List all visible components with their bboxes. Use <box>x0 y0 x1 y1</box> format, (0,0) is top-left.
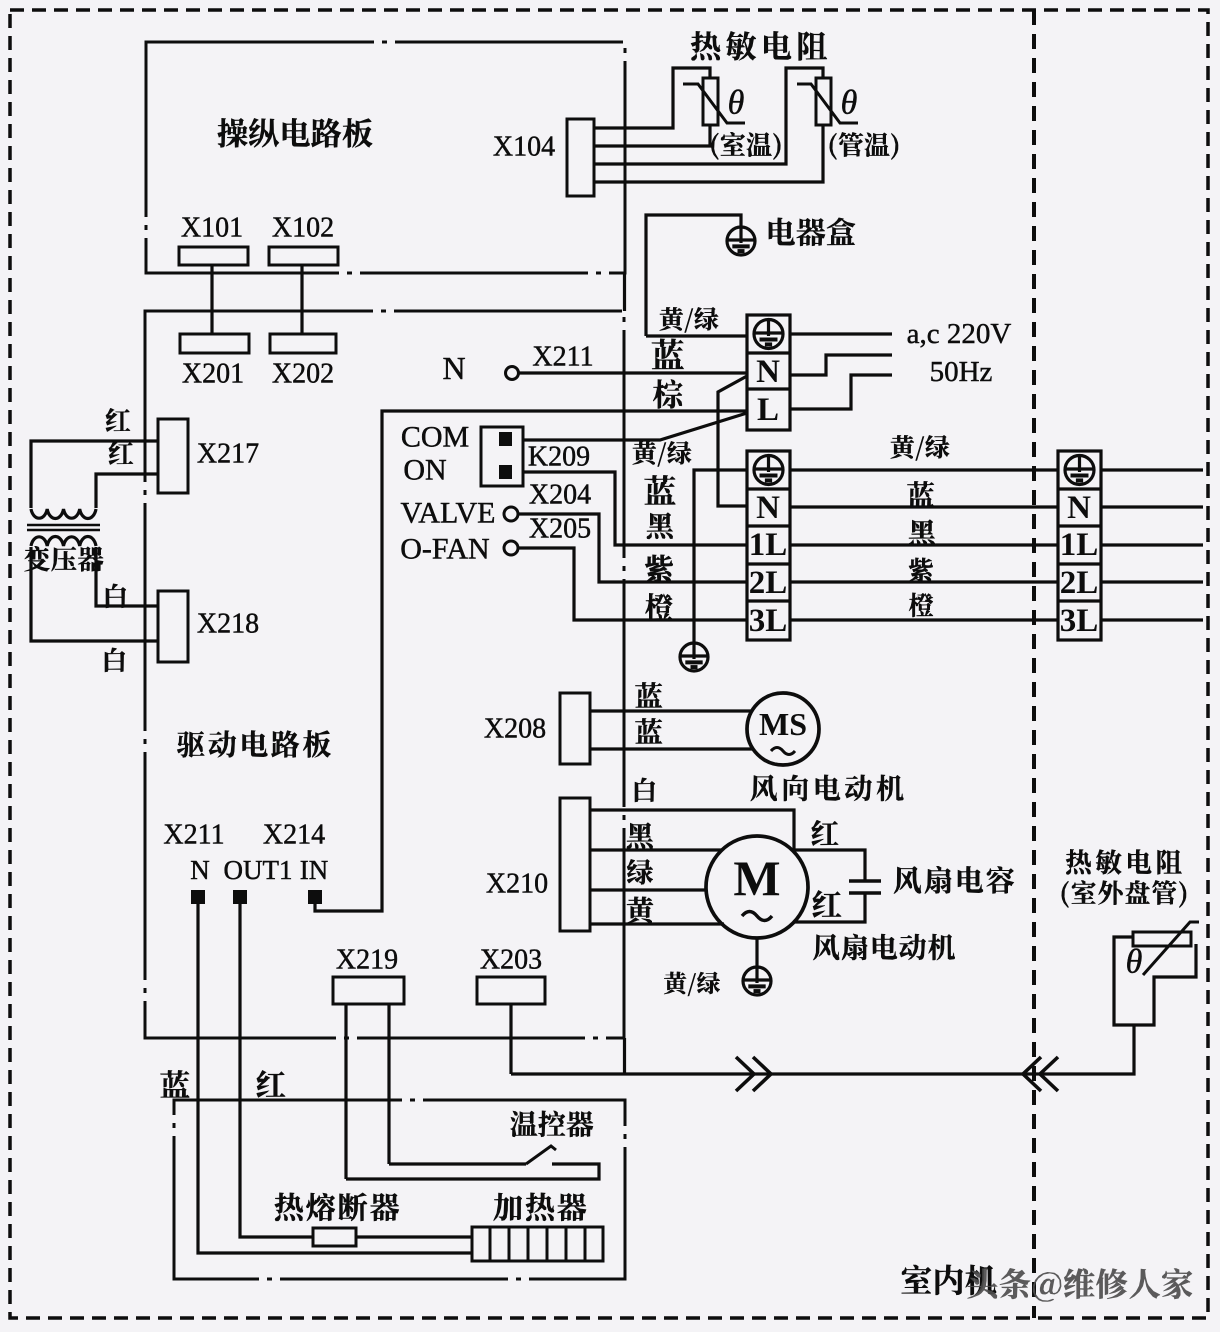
svg-text:X202: X202 <box>272 359 334 390</box>
svg-text:50Hz: 50Hz <box>930 356 993 388</box>
svg-text:X214: X214 <box>263 820 325 851</box>
svg-text:ON: ON <box>403 454 446 487</box>
svg-text:X211: X211 <box>163 820 224 851</box>
svg-text:X201: X201 <box>182 359 244 390</box>
svg-text:M: M <box>733 850 780 906</box>
svg-text:X101: X101 <box>181 213 243 244</box>
svg-text:X217: X217 <box>197 439 259 470</box>
svg-text:θ: θ <box>1126 944 1143 981</box>
svg-text:OUT1: OUT1 <box>224 855 293 885</box>
svg-text:N: N <box>1067 490 1091 526</box>
svg-text:X102: X102 <box>272 213 334 244</box>
svg-text:3L: 3L <box>1060 603 1099 639</box>
svg-text:θ: θ <box>841 85 858 122</box>
svg-text:X210: X210 <box>486 869 548 900</box>
svg-text:MS: MS <box>759 706 807 742</box>
svg-text:X218: X218 <box>197 609 259 640</box>
svg-text:1L: 1L <box>1060 527 1099 563</box>
svg-text:X219: X219 <box>336 945 398 976</box>
svg-text:COM: COM <box>401 421 469 454</box>
svg-text:2L: 2L <box>1060 565 1099 601</box>
svg-text:L: L <box>757 392 779 428</box>
svg-text:VALVE: VALVE <box>400 497 495 530</box>
svg-text:1L: 1L <box>749 527 788 563</box>
svg-text:3L: 3L <box>749 603 788 639</box>
svg-text:X204: X204 <box>529 480 591 511</box>
svg-text:X211: X211 <box>532 342 593 373</box>
svg-text:K209: K209 <box>528 442 590 473</box>
svg-text:N: N <box>756 490 780 526</box>
svg-text:N: N <box>190 855 210 885</box>
svg-text:O-FAN: O-FAN <box>400 533 489 566</box>
svg-text:N: N <box>442 350 465 386</box>
svg-text:θ: θ <box>728 85 745 122</box>
svg-text:IN: IN <box>300 855 329 885</box>
svg-text:X104: X104 <box>493 132 555 163</box>
svg-text:X203: X203 <box>480 945 542 976</box>
svg-text:X208: X208 <box>484 714 546 745</box>
svg-text:X205: X205 <box>529 514 591 545</box>
svg-text:a,c 220V: a,c 220V <box>907 318 1012 350</box>
svg-text:N: N <box>756 354 780 390</box>
svg-text:2L: 2L <box>749 565 788 601</box>
